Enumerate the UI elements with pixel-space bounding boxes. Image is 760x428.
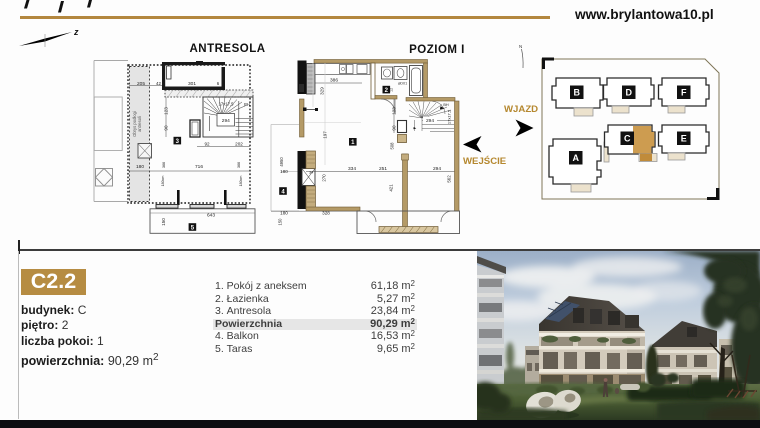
svg-text:17x17,5: 17x17,5 — [219, 102, 235, 107]
svg-text:150: 150 — [161, 218, 166, 226]
svg-text:D: D — [625, 88, 632, 98]
svg-text:334: 334 — [348, 166, 356, 172]
svg-text:421: 421 — [389, 184, 394, 192]
svg-text:34: 34 — [309, 171, 313, 175]
svg-text:386: 386 — [330, 78, 338, 84]
svg-text:197: 197 — [323, 131, 328, 139]
svg-text:180cm: 180cm — [161, 176, 165, 187]
svg-text:205: 205 — [137, 81, 145, 87]
svg-text:F: F — [681, 88, 687, 98]
svg-text:643: 643 — [207, 213, 215, 219]
svg-text:WJAZD: WJAZD — [504, 104, 538, 115]
svg-text:92: 92 — [204, 142, 210, 147]
svg-text:251: 251 — [379, 166, 387, 172]
svg-text:202: 202 — [235, 142, 243, 147]
svg-text:17x17,5: 17x17,5 — [447, 109, 452, 124]
svg-text:294: 294 — [222, 118, 230, 124]
svg-text:562: 562 — [447, 175, 452, 183]
svg-text:6: 6 — [217, 81, 220, 86]
svg-text:E: E — [681, 134, 687, 144]
svg-text:294: 294 — [433, 166, 441, 172]
svg-text:42: 42 — [156, 81, 161, 86]
svg-text:C: C — [624, 134, 631, 144]
svg-text:BH: BH — [443, 103, 449, 107]
svg-text:WEJŚCIE: WEJŚCIE — [463, 155, 507, 167]
svg-text:antresoli: antresoli — [137, 116, 142, 132]
svg-text:716: 716 — [195, 164, 203, 170]
svg-text:N: N — [519, 44, 522, 49]
svg-text:366: 366 — [162, 162, 166, 168]
svg-text:12: 12 — [390, 88, 394, 92]
svg-text:A: A — [572, 153, 579, 163]
svg-text:270: 270 — [322, 174, 327, 182]
svg-text:180: 180 — [280, 169, 288, 174]
svg-text:180cm: 180cm — [239, 176, 243, 187]
svg-text:4950: 4950 — [279, 157, 284, 167]
svg-text:⌀D01: ⌀D01 — [398, 82, 407, 86]
svg-text:180: 180 — [136, 164, 144, 170]
svg-text:294: 294 — [426, 118, 434, 124]
svg-text:366: 366 — [237, 162, 241, 168]
svg-text:329: 329 — [320, 87, 325, 95]
svg-text:B: B — [573, 88, 580, 98]
svg-text:BH: BH — [244, 102, 250, 107]
svg-text:508: 508 — [390, 142, 395, 150]
svg-text:150: 150 — [278, 218, 283, 226]
svg-text:301: 301 — [188, 81, 196, 87]
